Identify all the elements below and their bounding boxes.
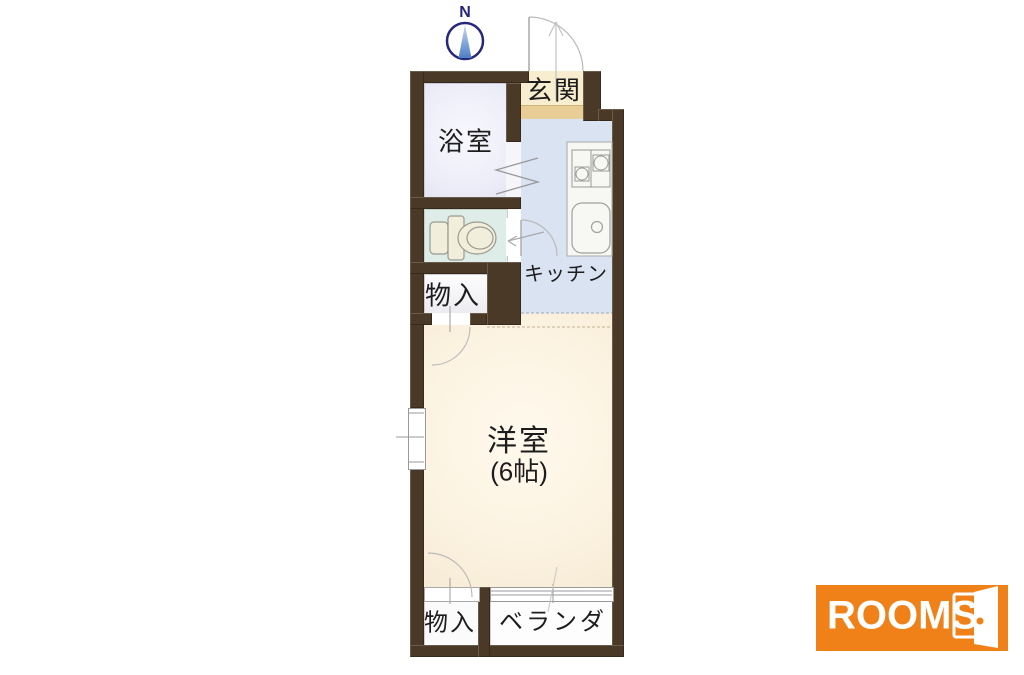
floorplan-page: N 浴室 玄関 キッチン 物入 洋室 (6帖) 物入 ベランダ ROOMS [0,0,1024,675]
wall-storage-bottom-left [410,313,432,325]
wall-top [410,71,529,83]
veranda-label: ベランダ [499,602,607,637]
bathroom-door-opening [506,142,521,197]
storage-upper-door-opening [432,313,470,325]
wall-bottom [410,645,624,657]
rooms-logo: ROOMS [816,585,1008,651]
storage-lower-label: 物入 [424,603,476,638]
bathroom-label: 浴室 [438,122,494,159]
toilet-door-opening [506,218,521,256]
entrance-label: 玄関 [526,71,582,108]
door-icon [944,585,1004,651]
wall-bathroom-toilet [410,197,521,209]
wall-column [487,262,521,325]
wall-left-upper [410,71,424,408]
kitchen-label: キッチン [524,258,608,287]
veranda-window [490,587,614,602]
storage-lower-door-opening [424,587,480,602]
western-room-size-label: (6帖) [490,452,548,489]
storage-upper-label: 物入 [425,276,481,313]
wall-storage-bottom-right [470,313,487,325]
toilet-floor [424,209,508,264]
compass-icon [447,23,483,59]
compass-north-label: N [459,4,471,22]
wall-left-lower [410,468,424,657]
window-left [408,408,426,470]
wall-bathroom-right [506,83,521,142]
wall-right [612,109,624,657]
